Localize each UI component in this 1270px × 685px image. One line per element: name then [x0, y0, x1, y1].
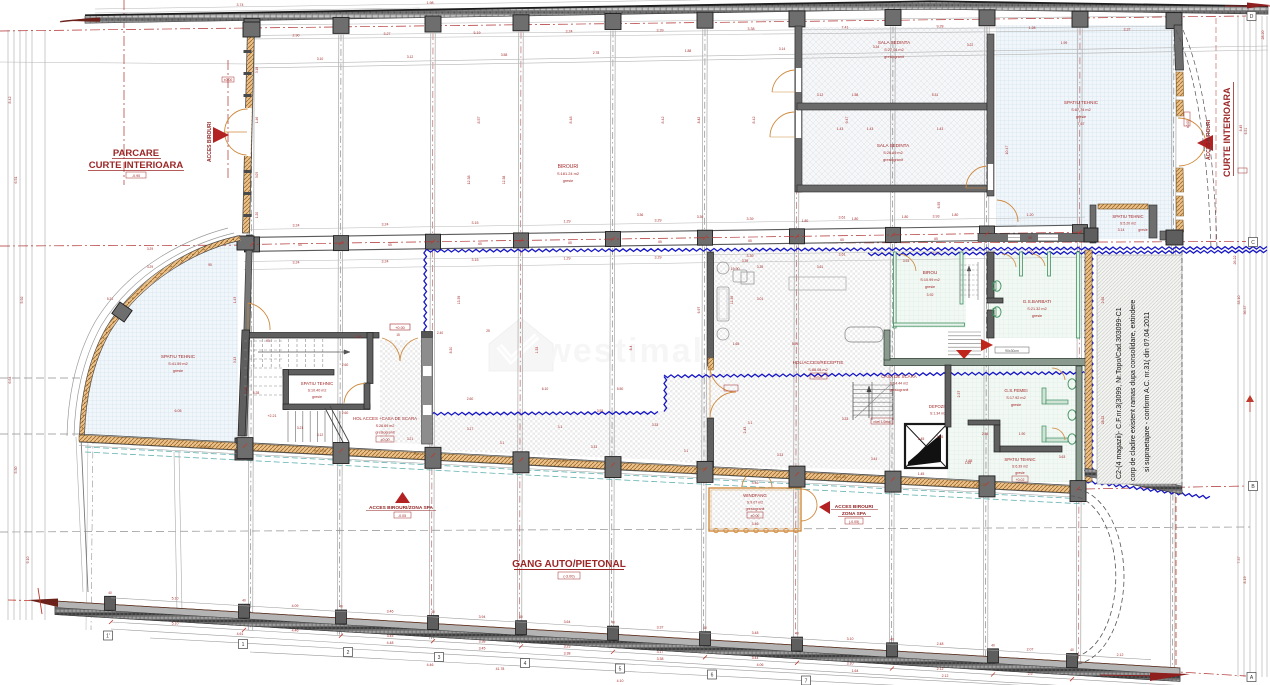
svg-text:6.64: 6.64	[8, 377, 12, 384]
svg-text:1.80: 1.80	[952, 213, 959, 217]
svg-text:5.92: 5.92	[20, 297, 24, 304]
svg-text:gresie: gresie	[1138, 228, 1148, 232]
svg-text:3.92: 3.92	[927, 293, 934, 297]
svg-text:+0.02: +0.02	[1016, 478, 1025, 482]
svg-text:40: 40	[431, 610, 435, 614]
svg-text:3.12: 3.12	[817, 93, 824, 97]
svg-text:40: 40	[890, 637, 894, 641]
svg-text:3.44: 3.44	[871, 457, 877, 461]
svg-text:3.10: 3.10	[317, 57, 324, 61]
svg-text:GANG AUTO/PIETONAL: GANG AUTO/PIETONAL	[512, 559, 626, 570]
svg-text:PARCARE: PARCARE	[113, 148, 159, 159]
svg-text:1.43: 1.43	[233, 297, 237, 303]
svg-text:-0.05: -0.05	[398, 514, 406, 518]
svg-text:±0.00: ±0.00	[751, 514, 760, 518]
svg-text:3.21: 3.21	[297, 426, 304, 430]
svg-text:S:181.24 m2: S:181.24 m2	[557, 171, 579, 176]
svg-text:1': 1'	[106, 634, 110, 640]
svg-text:3.38: 3.38	[564, 652, 571, 656]
svg-text:S:1.34 m2: S:1.34 m2	[930, 412, 946, 416]
svg-text:2.12: 2.12	[1117, 653, 1124, 657]
svg-text:CURTE INTERIOARA: CURTE INTERIOARA	[1222, 87, 1232, 177]
svg-text:SPATIU TEHNIC: SPATIU TEHNIC	[1064, 100, 1099, 105]
svg-text:8.4: 8.4	[629, 346, 633, 351]
svg-text:2.07: 2.07	[1027, 648, 1034, 652]
svg-text:3.37: 3.37	[657, 626, 664, 630]
svg-text:36.37: 36.37	[1243, 306, 1247, 315]
svg-text:G.S.BARBATI: G.S.BARBATI	[1023, 299, 1052, 304]
svg-text:gresie: gresie	[563, 178, 574, 183]
svg-text:gresiogranit: gresiogranit	[884, 55, 905, 59]
svg-text:1.40: 1.40	[244, 387, 248, 393]
svg-text:2.60: 2.60	[467, 397, 474, 401]
svg-text:65: 65	[934, 237, 938, 241]
svg-text:3.24: 3.24	[293, 224, 300, 228]
svg-text:1.29: 1.29	[564, 257, 571, 261]
svg-text:3.1: 3.1	[684, 449, 689, 453]
svg-text:19.90: 19.90	[731, 267, 740, 271]
svg-text:1.58: 1.58	[852, 93, 859, 97]
svg-text:1.64: 1.64	[852, 669, 859, 673]
svg-text:5.31: 5.31	[932, 93, 939, 97]
svg-text:5.10: 5.10	[172, 597, 179, 601]
svg-text:6.97: 6.97	[697, 307, 701, 314]
svg-text:90x30cm: 90x30cm	[1005, 349, 1019, 353]
svg-text:65: 65	[840, 238, 844, 242]
svg-text:gresie: gresie	[1076, 115, 1086, 119]
svg-text:1.46: 1.46	[255, 117, 259, 123]
svg-text:si supraetajare - conform A.C.: si supraetajare - conform A.C. nr.31( di…	[1144, 312, 1151, 472]
svg-text:SPATIU TEHNIC: SPATIU TEHNIC	[161, 354, 196, 359]
svg-text:3.30: 3.30	[697, 215, 704, 219]
svg-text:G.S.FEMEI: G.S.FEMEI	[1004, 388, 1027, 393]
svg-text:3.21: 3.21	[407, 437, 413, 441]
svg-text:gresie: gresie	[925, 285, 935, 289]
svg-text:40: 40	[1070, 648, 1074, 652]
svg-text:95: 95	[208, 263, 212, 267]
svg-text:1.20: 1.20	[1027, 213, 1034, 217]
svg-text:8.30: 8.30	[449, 347, 453, 354]
svg-text:3.38: 3.38	[657, 657, 664, 661]
svg-text:3.39: 3.39	[657, 28, 664, 32]
svg-text:2.92: 2.92	[1101, 297, 1105, 304]
svg-text:3.29: 3.29	[655, 218, 662, 222]
svg-text:3.13: 3.13	[233, 357, 237, 363]
svg-text:S:10.40 m2: S:10.40 m2	[308, 389, 327, 393]
svg-text:1.43: 1.43	[837, 127, 844, 131]
svg-text:3.63: 3.63	[1059, 455, 1066, 459]
svg-text:65: 65	[1028, 236, 1032, 240]
svg-text:S:27.04 m2: S:27.04 m2	[884, 48, 903, 52]
svg-text:3.17: 3.17	[467, 427, 474, 431]
svg-text:D: D	[1250, 14, 1254, 20]
svg-text:4: 4	[524, 661, 527, 667]
svg-text:6.55: 6.55	[937, 202, 941, 209]
svg-text:3.46: 3.46	[752, 481, 759, 485]
svg-text:2.37: 2.37	[957, 391, 961, 398]
svg-text:ACCES BIROURI: ACCES BIROURI	[835, 504, 874, 510]
svg-text:3.58: 3.58	[501, 53, 508, 57]
svg-text:3.36: 3.36	[637, 213, 644, 217]
svg-text:3.12: 3.12	[407, 55, 414, 59]
svg-text:28.20: 28.20	[1261, 31, 1265, 40]
svg-text:1.90: 1.90	[1019, 432, 1026, 436]
svg-text:13.39: 13.39	[457, 296, 461, 305]
svg-text:3.93: 3.93	[933, 214, 940, 218]
svg-text:3.14: 3.14	[1118, 228, 1125, 232]
svg-text:±0.00: ±0.00	[1186, 120, 1190, 128]
svg-text:4.09: 4.09	[292, 604, 299, 608]
svg-text:gresiogranit: gresiogranit	[746, 507, 765, 511]
svg-text:6.51: 6.51	[1244, 128, 1248, 135]
svg-text:±0.00: ±0.00	[814, 375, 823, 379]
svg-text:WINDFANG: WINDFANG	[743, 493, 767, 498]
svg-text:Hp=1.05: Hp=1.05	[554, 459, 566, 463]
svg-text:40: 40	[108, 591, 112, 595]
svg-text:4.10: 4.10	[617, 679, 624, 683]
svg-text:3.15: 3.15	[472, 221, 479, 225]
svg-text:2.48: 2.48	[355, 335, 361, 339]
svg-text:±0.00: ±0.00	[224, 78, 233, 82]
svg-text:3.1: 3.1	[748, 421, 753, 425]
svg-text:Hp=1.05: Hp=1.05	[974, 483, 986, 487]
svg-text:S:9.07 m2: S:9.07 m2	[747, 501, 763, 505]
svg-text:3.24: 3.24	[566, 30, 573, 34]
svg-text:S:14.44 m2: S:14.44 m2	[890, 382, 908, 386]
svg-text:1.20: 1.20	[255, 212, 259, 218]
svg-text:CURTE INTERIOARA: CURTE INTERIOARA	[89, 160, 184, 171]
svg-text:3.18: 3.18	[255, 67, 259, 73]
svg-text:gresiogranit: gresiogranit	[883, 158, 904, 162]
svg-text:3.22: 3.22	[967, 43, 974, 47]
svg-text:2.48: 2.48	[937, 642, 944, 646]
svg-text:S:88.08 m2: S:88.08 m2	[808, 368, 827, 372]
svg-text:BIROURI: BIROURI	[558, 164, 579, 170]
svg-text:25: 25	[486, 329, 490, 333]
svg-text:3.14: 3.14	[779, 47, 786, 51]
svg-text:3.39: 3.39	[742, 259, 749, 263]
svg-text:3.29: 3.29	[655, 255, 662, 259]
svg-text:8.42: 8.42	[8, 97, 12, 104]
svg-text:SPATIU TEHNIC: SPATIU TEHNIC	[1004, 457, 1035, 462]
svg-text:3.12: 3.12	[317, 433, 323, 437]
svg-text:SALA SEDINTA: SALA SEDINTA	[877, 143, 910, 148]
svg-text:1.80: 1.80	[802, 219, 809, 223]
svg-text:65: 65	[748, 239, 752, 243]
svg-text:65: 65	[658, 240, 662, 244]
svg-text:gresiogranit: gresiogranit	[375, 431, 394, 435]
svg-text:26.22: 26.22	[1233, 256, 1237, 265]
svg-text:9.28: 9.28	[937, 25, 944, 29]
svg-text:3.37: 3.37	[1124, 27, 1131, 31]
svg-text:HOL ACCES +CASA DE SCARA: HOL ACCES +CASA DE SCARA	[353, 416, 417, 421]
svg-text:3.74: 3.74	[237, 3, 244, 7]
svg-text:2.54: 2.54	[982, 432, 989, 436]
svg-text:S:26.69 m2: S:26.69 m2	[376, 424, 395, 428]
svg-text:C2-(4 magazii)- C.F.nr.3(3099,: C2-(4 magazii)- C.F.nr.3(3099, Nr.Topo/C…	[1116, 307, 1123, 479]
svg-text:9.47: 9.47	[845, 117, 849, 124]
svg-text:(-3.00): (-3.00)	[563, 575, 575, 579]
svg-text:3.15: 3.15	[472, 258, 479, 262]
svg-text:3.61: 3.61	[839, 253, 846, 257]
svg-text:S:17.92 m2: S:17.92 m2	[1006, 396, 1025, 400]
svg-text:3.39: 3.39	[757, 265, 764, 269]
svg-text:6.51: 6.51	[14, 177, 18, 184]
svg-text:5.54: 5.54	[792, 342, 799, 346]
svg-text:1.80: 1.80	[902, 215, 909, 219]
svg-text:8.48: 8.48	[569, 117, 573, 124]
svg-text:5.50: 5.50	[617, 387, 624, 391]
svg-text:8.42: 8.42	[752, 117, 756, 124]
svg-text:3.29: 3.29	[147, 247, 153, 251]
svg-text:33.10: 33.10	[1237, 296, 1241, 305]
svg-text:2.90: 2.90	[293, 34, 300, 38]
svg-text:5.28: 5.28	[253, 391, 260, 395]
svg-text:1.28: 1.28	[1029, 26, 1036, 30]
svg-text:Hp=1.05: Hp=1.05	[834, 475, 846, 479]
svg-text:95: 95	[266, 339, 270, 343]
svg-text:SALA SEDINTA: SALA SEDINTA	[878, 40, 911, 45]
svg-text:ZONA SPA: ZONA SPA	[842, 511, 867, 517]
svg-text:3.29: 3.29	[147, 265, 153, 269]
svg-text:(-0.05): (-0.05)	[849, 520, 860, 524]
svg-text:6.05: 6.05	[175, 409, 182, 413]
svg-text:S:10.99 m2: S:10.99 m2	[920, 278, 939, 282]
svg-text:3.10: 3.10	[847, 637, 854, 641]
svg-text:3.45: 3.45	[479, 647, 486, 651]
svg-text:4.61: 4.61	[237, 632, 244, 636]
svg-text:HOL/ACCES/RECEPTIE: HOL/ACCES/RECEPTIE	[793, 360, 844, 365]
svg-text:65: 65	[478, 242, 482, 246]
svg-text:S:6.39 m2: S:6.39 m2	[1012, 465, 1028, 469]
svg-text:3.27: 3.27	[384, 32, 391, 36]
svg-text:1.80: 1.80	[852, 217, 859, 221]
svg-text:3.1: 3.1	[500, 441, 505, 445]
svg-text:ACCES BIROURI: ACCES BIROURI	[207, 121, 213, 162]
svg-text:3.39: 3.39	[747, 217, 754, 221]
svg-text:4.46: 4.46	[427, 663, 434, 667]
svg-text:3.48: 3.48	[752, 631, 759, 635]
svg-text:3: 3	[438, 655, 441, 661]
svg-text:65: 65	[388, 243, 392, 247]
svg-text:-0.90: -0.90	[132, 174, 140, 178]
svg-text:1.45: 1.45	[918, 472, 925, 476]
svg-text:4.48: 4.48	[387, 641, 394, 645]
svg-text:3.94: 3.94	[479, 615, 486, 619]
svg-text:S:21.32 m2: S:21.32 m2	[1027, 307, 1046, 311]
svg-text:3.01: 3.01	[757, 297, 764, 301]
svg-text:40: 40	[339, 605, 343, 609]
svg-text:3.24: 3.24	[382, 222, 389, 226]
svg-text:4.06: 4.06	[757, 663, 764, 667]
svg-text:3.05: 3.05	[255, 172, 259, 178]
svg-text:S:87.74 m2: S:87.74 m2	[1071, 108, 1090, 112]
svg-text:7: 7	[805, 679, 808, 685]
svg-text:40: 40	[703, 626, 707, 630]
svg-text:2.78: 2.78	[593, 51, 600, 55]
svg-text:1.43: 1.43	[937, 127, 944, 131]
svg-text:40: 40	[795, 632, 799, 636]
svg-text:3.33: 3.33	[652, 423, 659, 427]
svg-text:3.33: 3.33	[777, 453, 783, 457]
svg-text:5.21: 5.21	[107, 297, 113, 301]
svg-text:SPATIU TEHNIC: SPATIU TEHNIC	[301, 381, 334, 386]
svg-text:C: C	[1251, 240, 1255, 246]
svg-text:2.40: 2.40	[437, 331, 443, 335]
svg-text:41.78: 41.78	[496, 667, 505, 671]
svg-text:CASA DE SCARA: CASA DE SCARA	[881, 374, 916, 379]
svg-text:5.50: 5.50	[14, 467, 18, 474]
svg-text:1.98: 1.98	[427, 1, 434, 5]
svg-text:3.33: 3.33	[591, 445, 597, 449]
svg-text:1.65: 1.65	[937, 435, 944, 439]
svg-text:15: 15	[396, 333, 400, 337]
svg-text:S:41.59 m2: S:41.59 m2	[168, 362, 187, 366]
svg-text:7.67: 7.67	[1078, 122, 1085, 126]
svg-text:2.60: 2.60	[342, 411, 349, 415]
svg-text:+2.21: +2.21	[267, 414, 276, 418]
svg-text:3.61: 3.61	[817, 265, 824, 269]
svg-text:1.29: 1.29	[564, 220, 571, 224]
svg-text:1.65: 1.65	[965, 461, 971, 465]
svg-text:11.36: 11.36	[730, 296, 734, 304]
svg-text:6: 6	[711, 673, 714, 679]
svg-text:8.42: 8.42	[697, 117, 701, 124]
svg-text:28.22: 28.22	[1101, 416, 1105, 425]
svg-text:Hp=1.05: Hp=1.05	[314, 449, 326, 453]
svg-text:9.10: 9.10	[26, 557, 30, 564]
svg-text:3.46: 3.46	[752, 522, 759, 526]
svg-text:3.39: 3.39	[747, 254, 754, 258]
svg-text:±0.00: ±0.00	[381, 438, 390, 442]
svg-text:gresie: gresie	[312, 395, 322, 399]
svg-text:BIROU: BIROU	[923, 270, 938, 275]
svg-text:3.93: 3.93	[903, 259, 910, 263]
svg-text:S:26.49 m2: S:26.49 m2	[883, 151, 902, 155]
svg-text:gresie: gresie	[1015, 471, 1025, 475]
svg-text:ACCES BIROURI/ZONA SPA: ACCES BIROURI/ZONA SPA	[369, 505, 433, 511]
svg-text:SPATIU TEHNIC: SPATIU TEHNIC	[1112, 214, 1143, 219]
svg-text:40: 40	[991, 643, 995, 647]
svg-text:1.88: 1.88	[685, 49, 692, 53]
svg-text:5.19: 5.19	[474, 31, 481, 35]
svg-text:65: 65	[298, 243, 302, 247]
svg-text:3.34: 3.34	[873, 45, 880, 49]
svg-text:2.60: 2.60	[342, 363, 349, 367]
svg-text:1: 1	[242, 642, 245, 648]
svg-text:2.12: 2.12	[942, 674, 949, 678]
svg-text:gresie: gresie	[1011, 403, 1021, 407]
svg-text:3.24: 3.24	[382, 259, 389, 263]
svg-text:3.46: 3.46	[387, 609, 394, 613]
svg-text:8.19: 8.19	[1243, 577, 1247, 584]
svg-text:1.99: 1.99	[1061, 41, 1068, 45]
svg-text:2.43: 2.43	[743, 427, 747, 434]
svg-text:3.61: 3.61	[839, 216, 846, 220]
svg-text:corp de cladire existent ramas: corp de cladire existent ramas dupa cons…	[1130, 300, 1137, 481]
svg-text:70x50cm: 70x50cm	[199, 445, 212, 449]
svg-text:1.65: 1.65	[733, 342, 740, 346]
svg-text:8.45: 8.45	[1239, 125, 1243, 132]
svg-text:8.57: 8.57	[477, 117, 481, 124]
svg-text:6.10: 6.10	[542, 387, 549, 391]
svg-text:40: 40	[242, 599, 246, 603]
svg-text:1.45: 1.45	[918, 437, 925, 441]
svg-text:5: 5	[619, 667, 622, 673]
svg-text:3.1: 3.1	[558, 425, 563, 429]
svg-text:12.38: 12.38	[502, 176, 506, 185]
svg-text:1.33: 1.33	[535, 347, 539, 354]
svg-text:Hp=1.05: Hp=1.05	[414, 452, 426, 456]
svg-text:3.33: 3.33	[842, 417, 849, 421]
svg-text:3.38: 3.38	[748, 27, 755, 31]
svg-text:1.43: 1.43	[867, 127, 874, 131]
svg-text:nivel 1/2etaj: nivel 1/2etaj	[873, 420, 890, 424]
svg-text:gresie: gresie	[1032, 314, 1042, 318]
svg-text:12.38: 12.38	[467, 176, 471, 185]
svg-text:7.37: 7.37	[1237, 557, 1241, 564]
svg-text:40: 40	[519, 615, 523, 619]
svg-text:10.47: 10.47	[1005, 146, 1009, 155]
svg-text:7.41: 7.41	[842, 26, 849, 30]
svg-text:3.24: 3.24	[293, 261, 300, 265]
svg-text:3.93: 3.93	[597, 409, 604, 413]
svg-text:S:5.20 m2: S:5.20 m2	[1120, 222, 1136, 226]
svg-text:gresie: gresie	[173, 369, 183, 373]
svg-text:65: 65	[568, 241, 572, 245]
svg-text:gresiogranit: gresiogranit	[890, 388, 909, 392]
svg-text:2: 2	[347, 650, 350, 656]
svg-text:40: 40	[611, 621, 615, 625]
svg-text:3.64: 3.64	[564, 620, 571, 624]
svg-text:+0.00: +0.00	[395, 326, 405, 330]
svg-text:8.42: 8.42	[661, 117, 665, 124]
